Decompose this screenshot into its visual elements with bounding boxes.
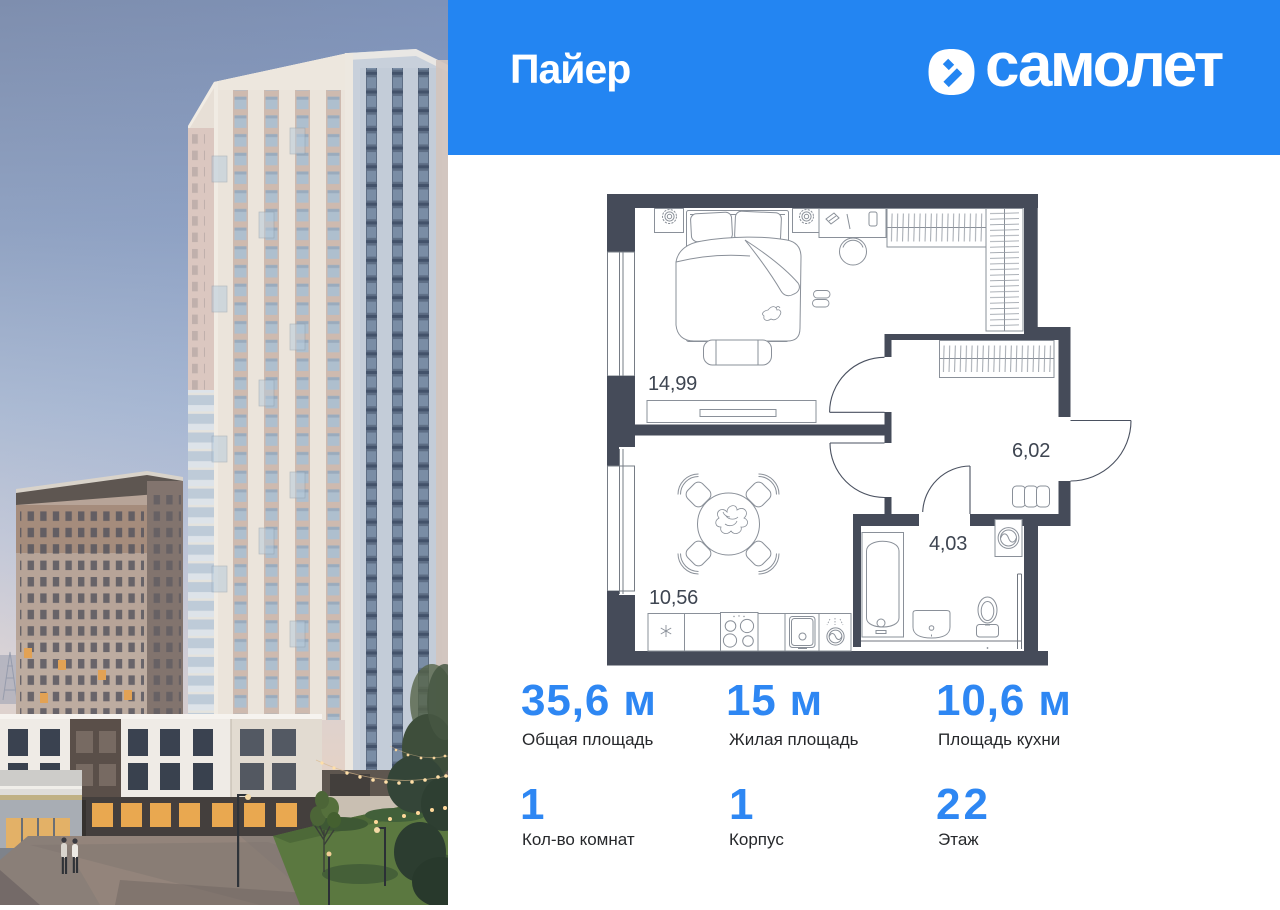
svg-text:10,56: 10,56 [649, 587, 698, 609]
svg-text:4,03: 4,03 [929, 533, 967, 555]
svg-text:14,99: 14,99 [648, 373, 697, 395]
svg-text:6,02: 6,02 [1012, 440, 1050, 462]
